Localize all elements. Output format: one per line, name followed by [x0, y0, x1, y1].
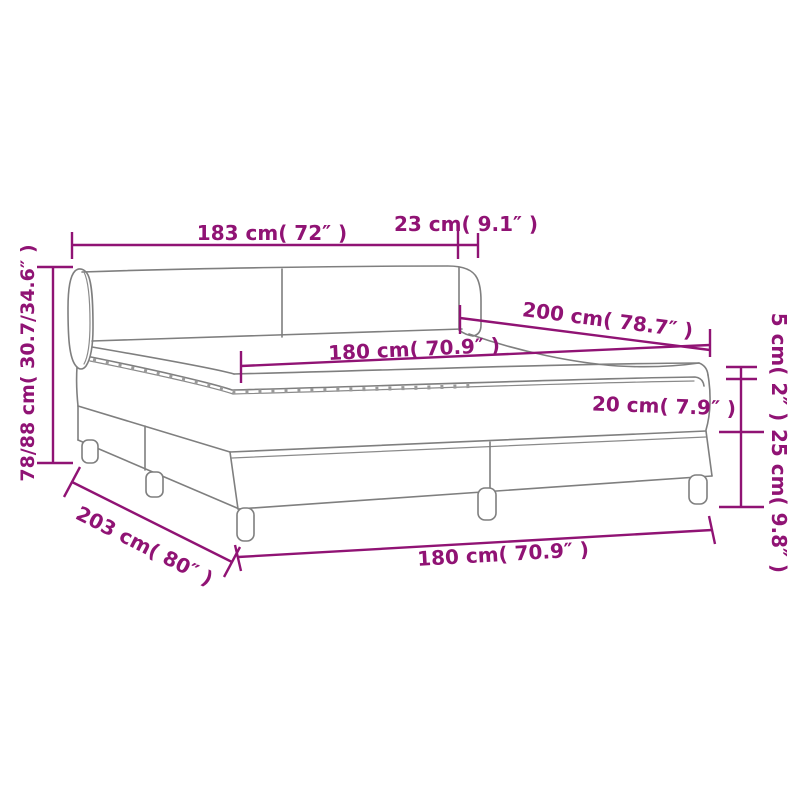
left-wing-inner-contour	[84, 272, 90, 364]
dimension-labels: 183 cm( 72″ ) 23 cm( 9.1″ ) 200 cm( 78.7…	[17, 212, 791, 591]
bed-legs	[82, 440, 707, 541]
bed-leg-front-corner	[237, 508, 254, 541]
base-front-left-corner-edge	[230, 452, 238, 509]
bed-dimension-diagram: 183 cm( 72″ ) 23 cm( 9.1″ ) 200 cm( 78.7…	[0, 0, 800, 800]
label-mattress-width: 180 cm( 70.9″ )	[328, 333, 501, 365]
bed-leg-back-left	[82, 440, 98, 463]
bed-leg-front-middle	[478, 488, 496, 520]
label-headboard-width: 183 cm( 72″ )	[197, 221, 347, 245]
mattress-side-left-edge	[77, 367, 78, 406]
box-spring-base	[78, 406, 712, 509]
dimension-right-heights	[719, 367, 764, 507]
pillowtop-seam-upper	[91, 357, 704, 390]
label-wing-depth: 23 cm( 9.1″ )	[394, 212, 538, 236]
label-total-length: 203 cm( 80″ )	[72, 501, 217, 591]
base-front-face-bottom-edge	[238, 476, 712, 509]
mattress-top-foot-edge	[234, 363, 708, 375]
base-front-face-top-edge	[230, 431, 706, 452]
pillowtop-seam-lower	[90, 361, 694, 394]
bed-leg-left-middle	[146, 472, 163, 497]
label-mattress-height: 20 cm( 7.9″ )	[592, 391, 737, 420]
label-base-width: 180 cm( 70.9″ )	[417, 537, 590, 571]
bed-leg-front-right	[689, 475, 707, 504]
label-headboard-height: 78/88 cm( 30.7/34.6″ )	[17, 244, 39, 481]
base-front-face-top-seam	[232, 437, 706, 458]
headboard	[82, 266, 481, 341]
headboard-left-wing	[68, 269, 93, 369]
diagram-canvas: 183 cm( 72″ ) 23 cm( 9.1″ ) 200 cm( 78.7…	[0, 0, 800, 800]
mattress-top-left-edge	[92, 347, 234, 374]
left-wing-outline	[68, 269, 93, 369]
dim-tick	[64, 467, 80, 497]
label-pillowtop-height: 5 cm( 2″ )	[767, 313, 791, 422]
label-base-height: 25 cm( 9.8″ )	[767, 429, 791, 573]
base-front-face-right-edge	[706, 431, 712, 476]
base-left-face-top-edge	[78, 406, 230, 452]
